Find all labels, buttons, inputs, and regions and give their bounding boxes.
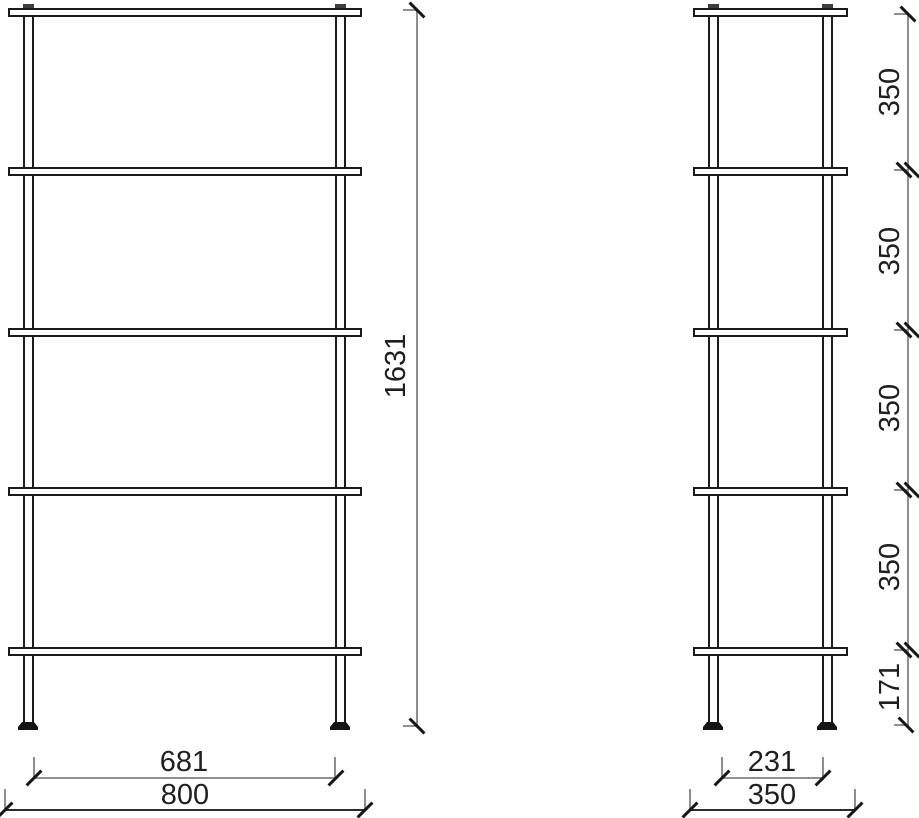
extension-line [334, 757, 336, 777]
front-shelf-3 [8, 328, 362, 337]
side-segment-dim-label-4: 350 [874, 512, 906, 622]
side-segment-dim-label-5: 171 [874, 632, 906, 742]
side-shelf-5 [693, 647, 848, 656]
front-left-post [23, 8, 34, 722]
front-right-post [335, 8, 346, 722]
front-height-dim-line [416, 10, 418, 726]
side-right-post-foot [817, 722, 837, 730]
front-shelf-4 [8, 487, 362, 496]
technical-drawing: 1631 681 800 350 350 350 350 171 [0, 0, 919, 818]
side-chain-dim-line [907, 14, 909, 725]
side-left-post [708, 8, 719, 722]
side-segment-dim-label-2: 350 [874, 196, 906, 306]
front-shelf-1 [8, 8, 362, 17]
side-segment-dim-label-1: 350 [874, 37, 906, 147]
front-feet-span-dim-label: 681 [129, 746, 239, 778]
side-segment-dim-label-3: 350 [874, 353, 906, 463]
side-right-post [822, 8, 833, 722]
front-width-dim-label: 800 [130, 779, 240, 811]
front-right-post-foot [330, 722, 350, 730]
side-shelf-3 [693, 328, 848, 337]
front-shelf-2 [8, 167, 362, 176]
side-left-post-foot [703, 722, 723, 730]
side-shelf-4 [693, 487, 848, 496]
front-height-dim-label: 1631 [380, 311, 412, 421]
front-shelf-5 [8, 647, 362, 656]
side-shelf-2 [693, 167, 848, 176]
side-feet-span-dim-label: 231 [717, 746, 827, 778]
side-depth-dim-label: 350 [717, 779, 827, 811]
side-shelf-1 [693, 8, 848, 17]
front-left-post-foot [18, 722, 38, 730]
